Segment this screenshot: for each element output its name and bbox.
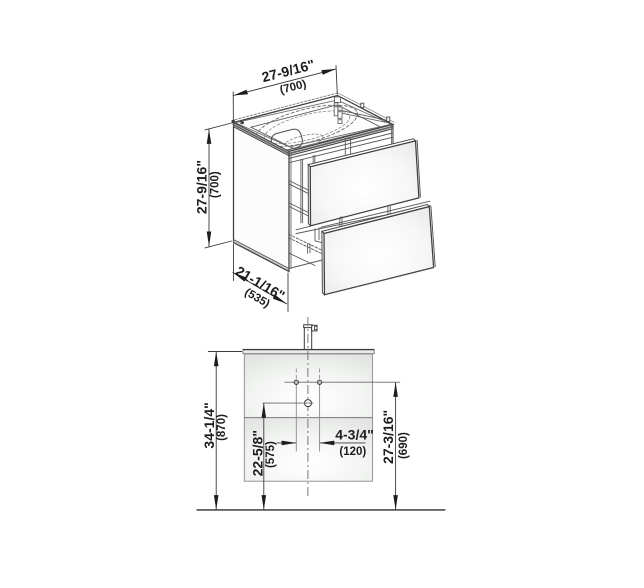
svg-text:(120): (120) — [339, 446, 366, 458]
svg-text:34-1/4": 34-1/4" — [201, 402, 217, 448]
svg-text:27-9/16": 27-9/16" — [194, 160, 210, 214]
svg-text:(575): (575) — [265, 441, 277, 468]
svg-text:27-3/16": 27-3/16" — [380, 410, 396, 464]
svg-text:4-3/4": 4-3/4" — [335, 427, 374, 443]
svg-text:22-5/8": 22-5/8" — [250, 430, 266, 476]
svg-text:(870): (870) — [216, 414, 228, 441]
svg-text:(700): (700) — [279, 78, 308, 96]
svg-text:(690): (690) — [398, 432, 410, 459]
svg-text:27-9/16": 27-9/16" — [260, 56, 316, 85]
svg-text:(700): (700) — [210, 171, 222, 198]
